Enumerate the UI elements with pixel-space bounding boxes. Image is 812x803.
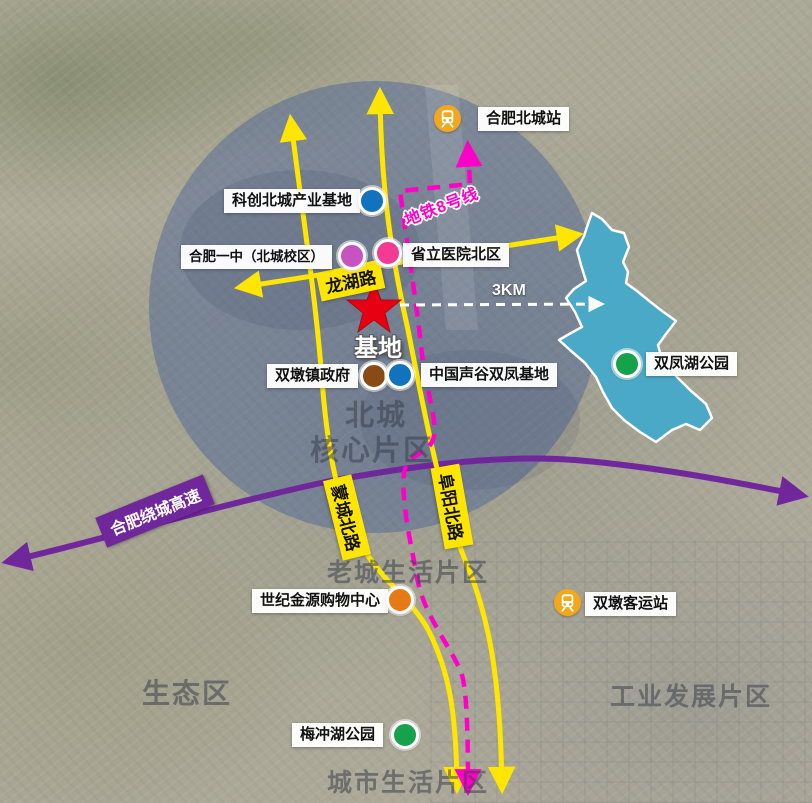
poi-label-shuangfeng-lake-park: 双凤湖公园 [646,352,737,376]
satellite-map: 北城 核心片区 老城生活片区 生态区 工业发展片区 城市生活片区 龙湖路 蒙城北… [0,0,812,803]
poi-label-kechuang-base: 科创北城产业基地 [224,189,360,213]
station-label-north-city: 合肥北城站 [478,107,569,131]
poi-dot-shuangfeng-lake-park [613,350,641,378]
poi-label-voice-valley: 中国声谷双凤基地 [421,363,557,387]
poi-label-hefei-no1-school: 合肥一中（北城校区） [181,245,332,269]
district-eco: 生态区 [142,672,232,712]
poi-dot-kechuang-base [358,187,386,215]
radius-label: 3KM [492,282,526,300]
poi-label-provincial-hospital: 省立医院北区 [403,243,509,267]
poi-label-meichong-lake-park: 梅冲湖公园 [292,723,383,747]
train-station-icon [434,105,461,132]
poi-dot-meichong-lake-park [391,721,419,749]
district-core-line2: 核心片区 [310,427,434,469]
station-label-shuangdun: 双墩客运站 [585,592,676,616]
poi-label-shiji-mall: 世纪金源购物中心 [252,589,388,613]
poi-dot-provincial-hospital [374,239,402,267]
poi-dot-voice-valley [386,361,414,389]
poi-label-shuangdun-gov: 双墩镇政府 [267,364,358,388]
poi-dot-shiji-mall [386,586,414,614]
poi-dot-hefei-no1-school [338,242,366,270]
shuangfeng-lake [559,213,712,442]
site-label: 基地 [354,328,402,363]
district-industrial: 工业发展片区 [610,677,772,713]
district-city-life: 城市生活片区 [327,763,489,799]
poi-dot-shuangdun-gov [360,362,388,390]
bus-station-icon [554,589,581,616]
